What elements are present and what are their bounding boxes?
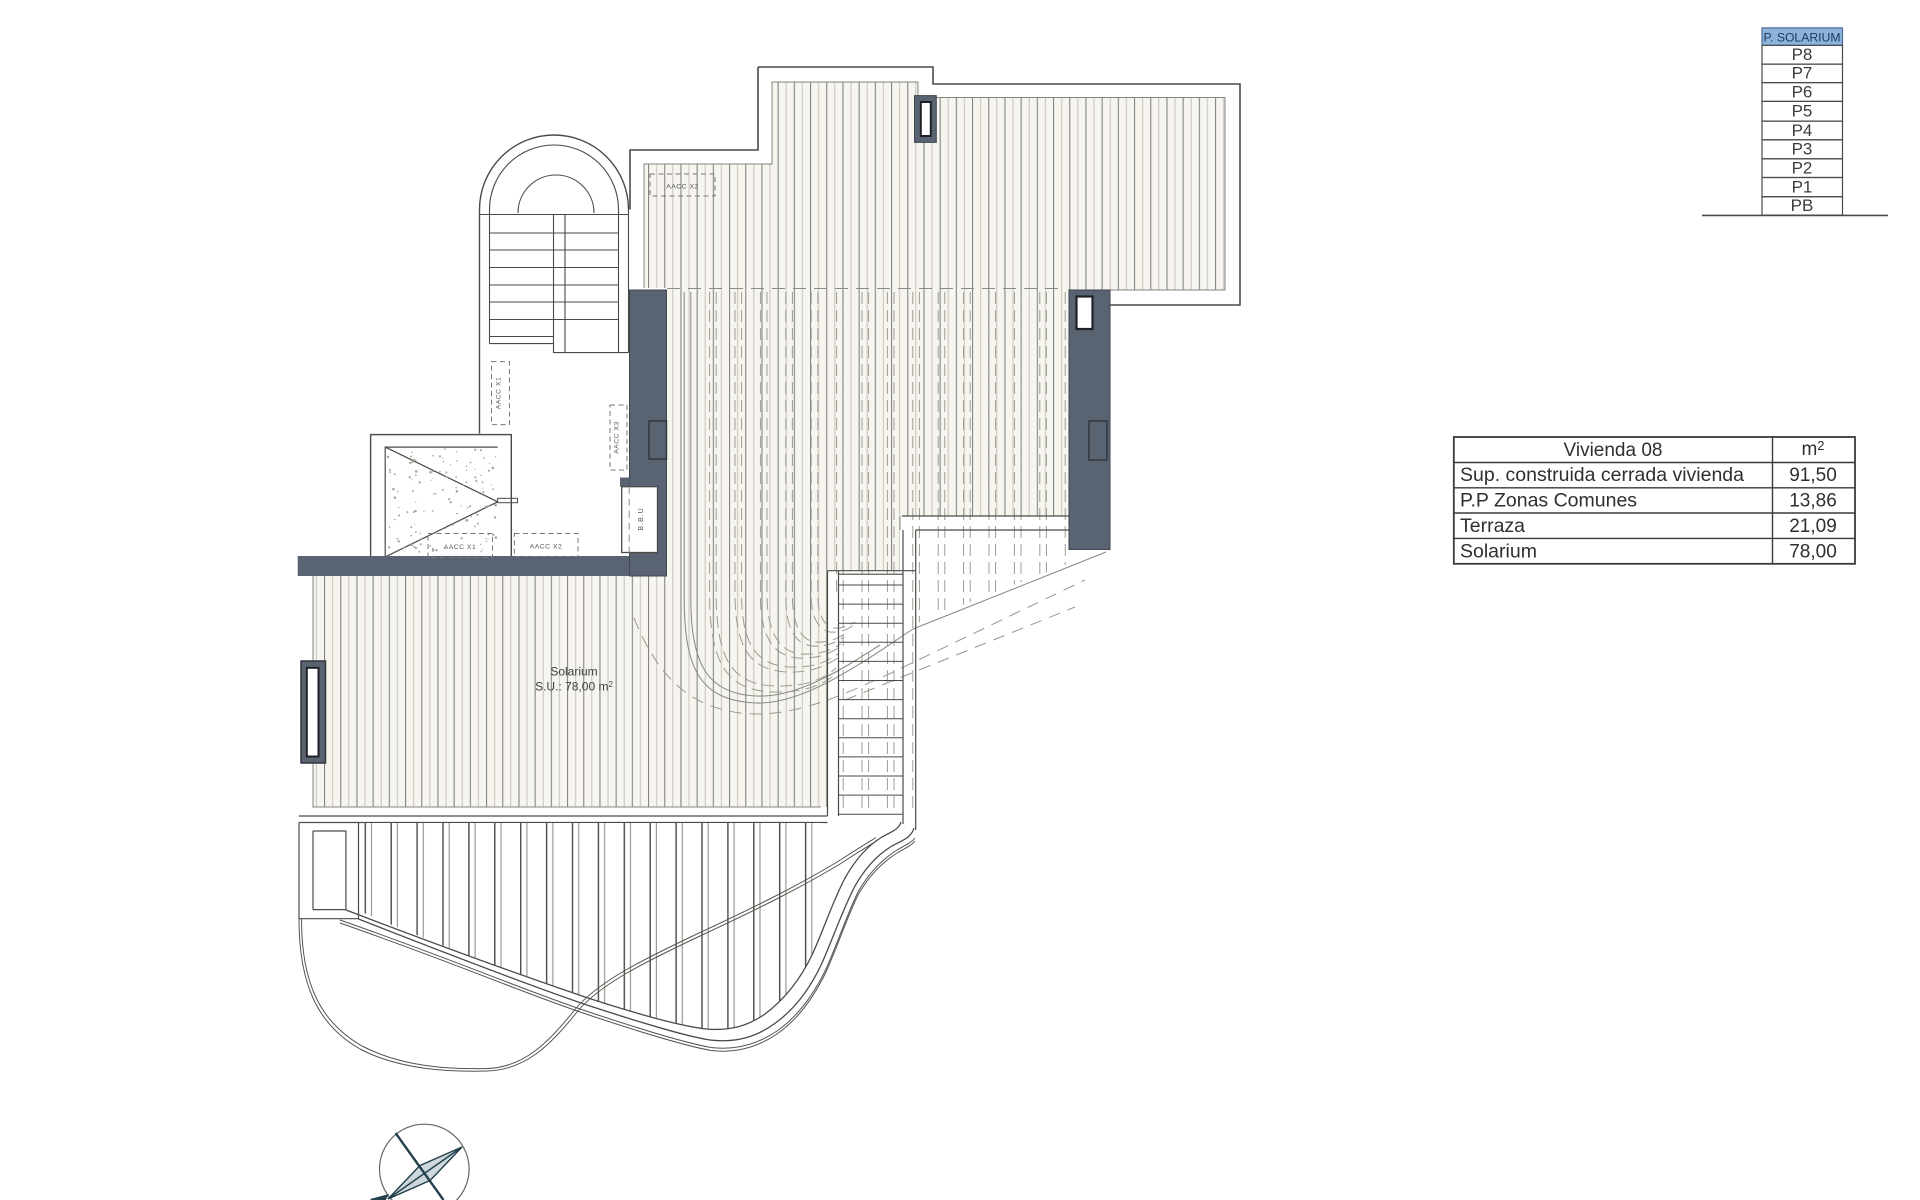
svg-text:AACC X2: AACC X2 xyxy=(666,184,699,191)
svg-text:Sup. construida cerrada vivien: Sup. construida cerrada vivienda xyxy=(1460,464,1744,486)
svg-text:78,00: 78,00 xyxy=(1789,542,1837,563)
svg-text:P6: P6 xyxy=(1792,82,1813,101)
svg-text:AACC X3: AACC X3 xyxy=(614,421,621,454)
svg-text:S.U.: 78,00 m2: S.U.: 78,00 m2 xyxy=(535,680,613,694)
svg-text:21,09: 21,09 xyxy=(1789,516,1837,537)
svg-text:Terraza: Terraza xyxy=(1460,515,1525,537)
svg-text:P7: P7 xyxy=(1792,64,1813,83)
svg-text:P4: P4 xyxy=(1792,121,1813,140)
svg-text:AACC X1: AACC X1 xyxy=(496,377,503,410)
svg-text:P2: P2 xyxy=(1792,158,1813,177)
svg-text:P.P Zonas Comunes: P.P Zonas Comunes xyxy=(1460,490,1637,512)
svg-text:B.B.U: B.B.U xyxy=(638,507,645,530)
svg-text:Solarium: Solarium xyxy=(550,665,597,679)
svg-text:P. SOLARIUM: P. SOLARIUM xyxy=(1764,31,1841,45)
svg-text:PB: PB xyxy=(1791,196,1814,215)
svg-text:91,50: 91,50 xyxy=(1789,465,1837,486)
svg-text:P5: P5 xyxy=(1792,102,1813,121)
svg-text:AACC X2: AACC X2 xyxy=(530,544,563,551)
svg-text:AACC X1: AACC X1 xyxy=(444,544,477,551)
svg-text:P1: P1 xyxy=(1792,177,1813,196)
svg-text:Solarium: Solarium xyxy=(1460,541,1537,563)
svg-text:13,86: 13,86 xyxy=(1789,491,1837,512)
svg-text:P8: P8 xyxy=(1792,45,1813,64)
svg-text:Vivienda 08: Vivienda 08 xyxy=(1564,440,1663,461)
svg-text:P3: P3 xyxy=(1792,140,1813,159)
